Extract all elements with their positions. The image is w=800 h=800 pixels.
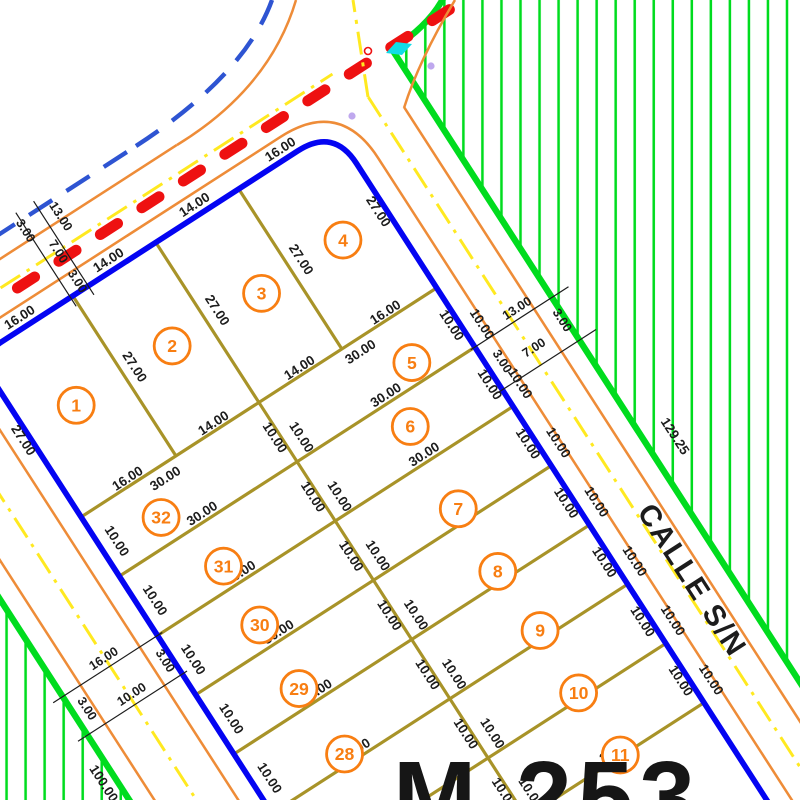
lot-circle: 7 (440, 491, 476, 527)
lot-circle: 5 (394, 345, 430, 381)
lot-number: 31 (214, 556, 234, 576)
lot-circle: 1 (58, 387, 94, 423)
dim-label: 30.00 (342, 336, 378, 367)
dim-label: 13.00 (500, 294, 534, 323)
lot-circle: 6 (392, 409, 428, 445)
dim-label: 10.00 (298, 478, 329, 514)
lot-number: 8 (493, 562, 503, 582)
dim-label: 10.00 (374, 597, 405, 633)
lot-number: 1 (71, 395, 81, 415)
lot-circle: 10 (561, 675, 597, 711)
lot-number: 32 (151, 508, 171, 528)
rotated-frame: 3.00 13.00 7.00 3.00 13.00 3.00 7.00 3.0… (0, 0, 800, 800)
dim-label: 14.00 (281, 352, 317, 383)
lot-number: 30 (250, 615, 270, 635)
lot-number: 3 (257, 284, 267, 304)
dim-label: 16.00 (109, 463, 145, 494)
lot-number: 4 (338, 230, 348, 250)
lot-number: 7 (453, 499, 463, 519)
lot-number: 6 (405, 417, 415, 437)
lot-number: 2 (167, 336, 177, 356)
lot-circle: 31 (206, 548, 242, 584)
dim-label: 30.00 (147, 463, 183, 494)
dim-label: 3.00 (65, 267, 90, 295)
survey-point-circle (365, 48, 372, 55)
dim-label: 10.00 (412, 656, 443, 692)
lot-circle: 29 (281, 671, 317, 707)
dim-label: 10.00 (336, 538, 367, 574)
lot-circle: 9 (522, 613, 558, 649)
dim-label: 10.00 (115, 680, 149, 709)
lot-number: 5 (407, 353, 417, 373)
lot-circle: 3 (244, 275, 280, 311)
dim-label: 10.00 (260, 419, 291, 455)
lot-number: 28 (335, 744, 355, 764)
cad-canvas: 3.00 13.00 7.00 3.00 13.00 3.00 7.00 3.0… (0, 0, 800, 800)
lot-circle: 28 (327, 736, 363, 772)
lot-number: 10 (569, 683, 589, 703)
dim-label: 14.00 (195, 408, 231, 439)
lot-number: 9 (535, 621, 545, 641)
vertex-marker (427, 62, 434, 69)
lot-number: 29 (289, 679, 309, 699)
lot-circle: 8 (480, 553, 516, 589)
vertex-marker (348, 112, 355, 119)
far-block-dashed-corner (136, 0, 272, 146)
lot-circle: 2 (154, 328, 190, 364)
lot-circle: 30 (242, 607, 278, 643)
lot-circle: 4 (325, 222, 361, 258)
lot-circle: 32 (143, 499, 179, 535)
dim-label: 27.00 (119, 349, 150, 385)
dim-label: 16.00 (367, 297, 403, 328)
drawing-viewport: 3.00 13.00 7.00 3.00 13.00 3.00 7.00 3.0… (0, 0, 800, 800)
dim-label: 16.00 (87, 644, 121, 673)
block-label: M 253 (393, 741, 701, 800)
